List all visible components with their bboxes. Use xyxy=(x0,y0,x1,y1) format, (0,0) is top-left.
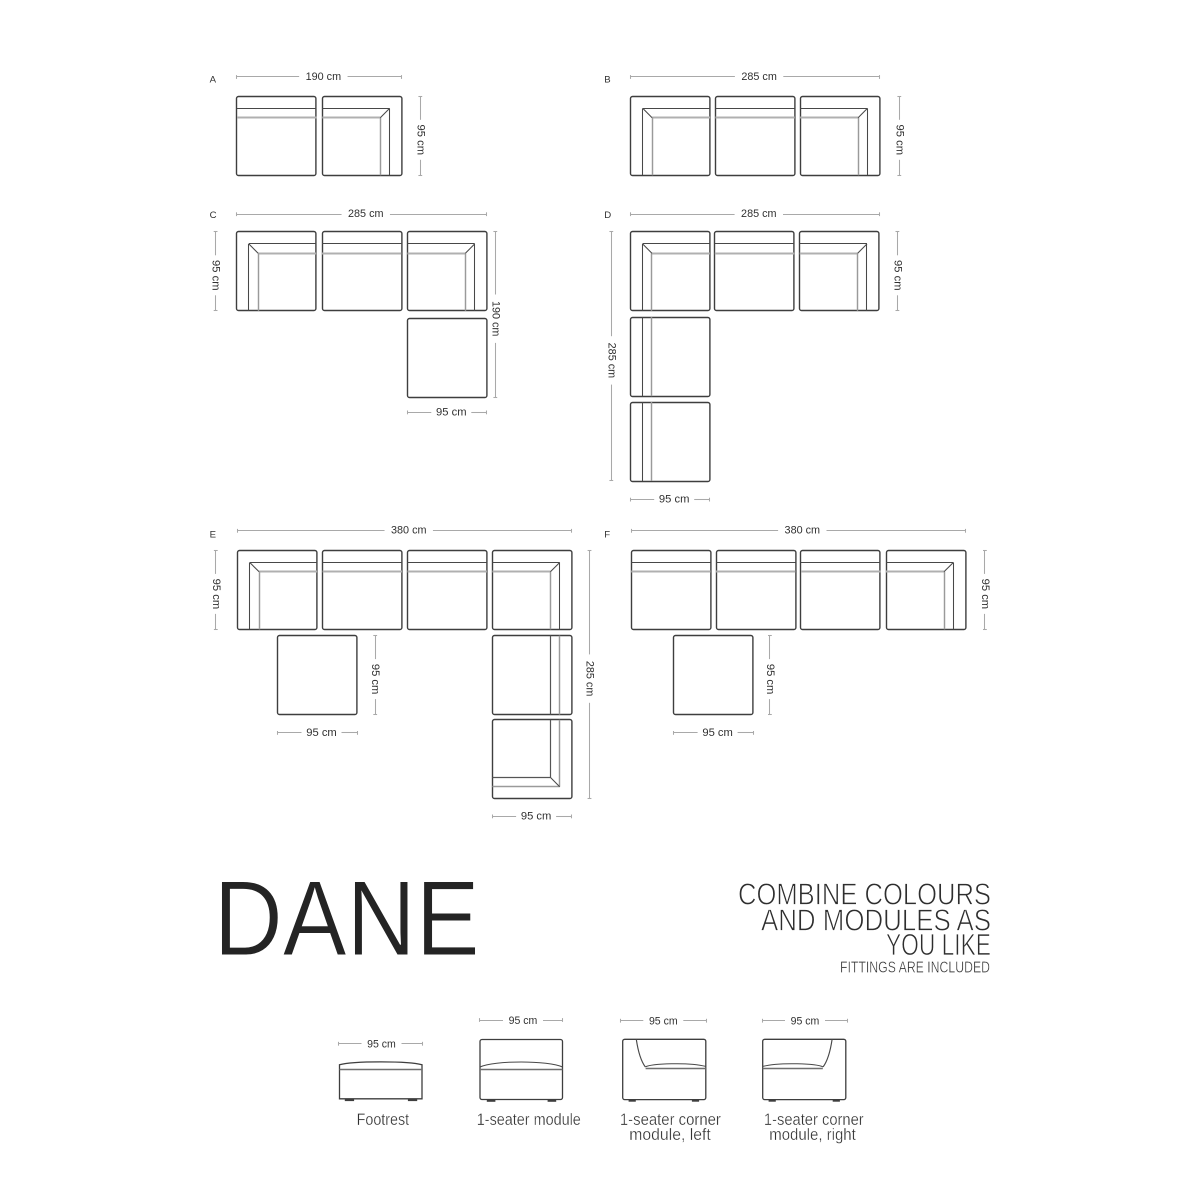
svg-text:95 cm: 95 cm xyxy=(369,664,381,695)
svg-text:95 cm: 95 cm xyxy=(893,125,905,156)
svg-text:module, left: module, left xyxy=(629,1125,711,1144)
svg-text:DANE: DANE xyxy=(214,858,480,978)
svg-text:E: E xyxy=(210,530,216,541)
svg-text:95 cm: 95 cm xyxy=(702,727,733,739)
svg-text:B: B xyxy=(604,74,610,85)
svg-text:95 cm: 95 cm xyxy=(210,579,222,610)
svg-text:Footrest: Footrest xyxy=(357,1110,410,1129)
svg-text:module, right: module, right xyxy=(769,1125,856,1144)
svg-text:F: F xyxy=(604,530,610,541)
svg-text:285 cm: 285 cm xyxy=(741,208,777,220)
svg-text:95 cm: 95 cm xyxy=(764,664,776,695)
svg-text:95 cm: 95 cm xyxy=(649,1016,678,1028)
svg-text:380 cm: 380 cm xyxy=(391,525,427,537)
svg-text:380 cm: 380 cm xyxy=(785,525,821,537)
svg-text:95 cm: 95 cm xyxy=(791,1016,820,1028)
svg-text:95 cm: 95 cm xyxy=(659,494,690,506)
svg-text:285 cm: 285 cm xyxy=(584,661,596,697)
svg-text:95 cm: 95 cm xyxy=(979,579,991,610)
svg-text:190 cm: 190 cm xyxy=(306,71,342,83)
svg-text:285 cm: 285 cm xyxy=(605,343,617,379)
svg-text:YOU LIKE: YOU LIKE xyxy=(886,928,991,962)
svg-text:95 cm: 95 cm xyxy=(414,125,426,156)
svg-text:A: A xyxy=(210,74,217,85)
svg-text:95 cm: 95 cm xyxy=(210,260,222,291)
svg-text:D: D xyxy=(604,210,611,221)
svg-text:FITTINGS ARE INCLUDED: FITTINGS ARE INCLUDED xyxy=(840,960,990,977)
svg-text:95 cm: 95 cm xyxy=(509,1015,538,1027)
svg-text:95 cm: 95 cm xyxy=(306,727,337,739)
svg-text:1-seater module: 1-seater module xyxy=(477,1110,581,1129)
svg-text:95 cm: 95 cm xyxy=(891,260,903,291)
svg-text:95 cm: 95 cm xyxy=(521,810,552,822)
svg-text:95 cm: 95 cm xyxy=(436,406,467,418)
svg-text:C: C xyxy=(210,210,217,221)
svg-text:285 cm: 285 cm xyxy=(741,71,777,83)
svg-text:95 cm: 95 cm xyxy=(367,1039,396,1051)
svg-text:285 cm: 285 cm xyxy=(348,208,384,220)
svg-text:190 cm: 190 cm xyxy=(489,301,501,337)
